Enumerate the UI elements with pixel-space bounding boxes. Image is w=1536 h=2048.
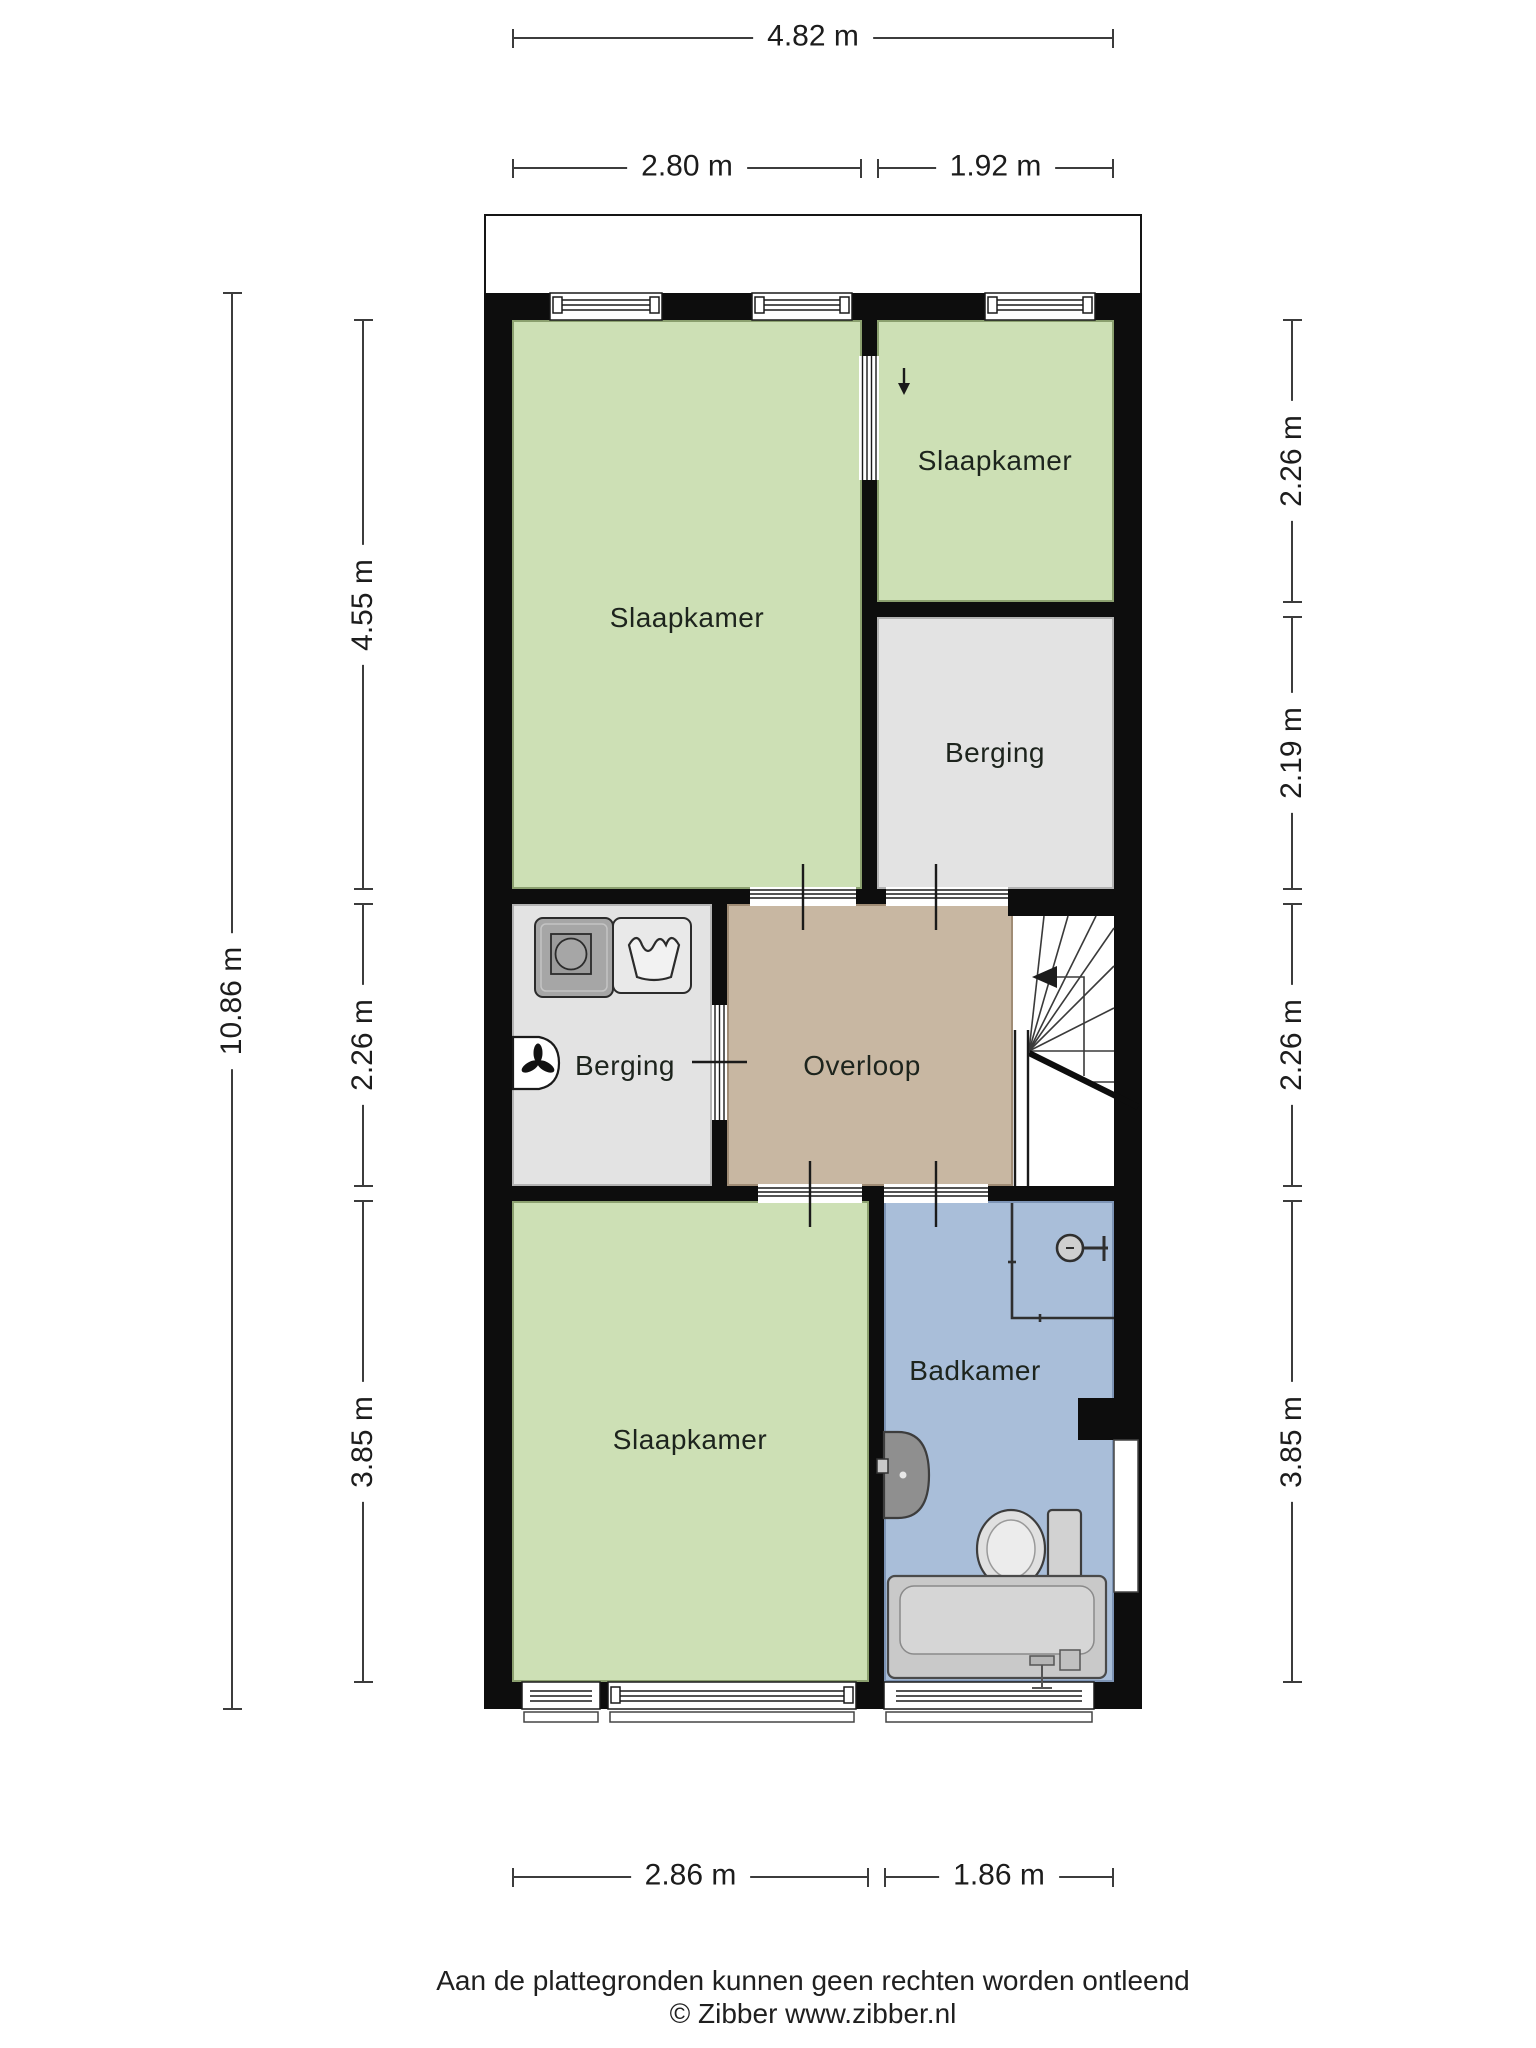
sliding-door-bedrooms [859, 356, 879, 480]
door-direction-arrow-icon [898, 368, 910, 395]
bathtub-icon [888, 1576, 1106, 1688]
window-top-2 [752, 293, 852, 320]
floor-plan-page: 4.82 m 2.80 m 1.92 m 10.86 m 4.55 m 2.26… [0, 0, 1536, 2048]
washing-machine-icon [535, 918, 613, 997]
room-label-bedroom-small: Slaapkamer [918, 445, 1072, 477]
laundry-basket-icon [613, 918, 691, 993]
room-label-landing: Overloop [803, 1050, 921, 1082]
footer-disclaimer: Aan de plattegronden kunnen geen rechten… [436, 1965, 1189, 1997]
shower-icon [1008, 1203, 1114, 1322]
door-bedroom-large [750, 864, 856, 930]
room-label-bedroom-bottom: Slaapkamer [613, 1424, 767, 1456]
window-bottom-2 [608, 1682, 856, 1722]
window-bottom-3 [884, 1682, 1094, 1722]
door-bedroom-bottom [758, 1161, 862, 1227]
window-top-1 [550, 293, 662, 320]
room-label-bathroom: Badkamer [909, 1355, 1041, 1387]
plan-symbols-layer [0, 0, 1536, 2048]
stairs [1008, 889, 1142, 1186]
bathroom-duct [1078, 1398, 1142, 1592]
door-storage-top [886, 864, 1008, 930]
window-bottom-1 [522, 1682, 600, 1722]
door-bathroom [884, 1161, 988, 1227]
window-top-3 [985, 293, 1095, 320]
sink-icon [877, 1432, 929, 1518]
room-label-bedroom-large: Slaapkamer [610, 602, 764, 634]
room-label-storage-top: Berging [945, 737, 1045, 769]
stair-rail [1015, 1030, 1028, 1186]
sliding-door-storage-mid [692, 1005, 747, 1120]
room-label-storage-mid: Berging [575, 1050, 675, 1082]
footer-copyright: © Zibber www.zibber.nl [670, 1998, 957, 2030]
